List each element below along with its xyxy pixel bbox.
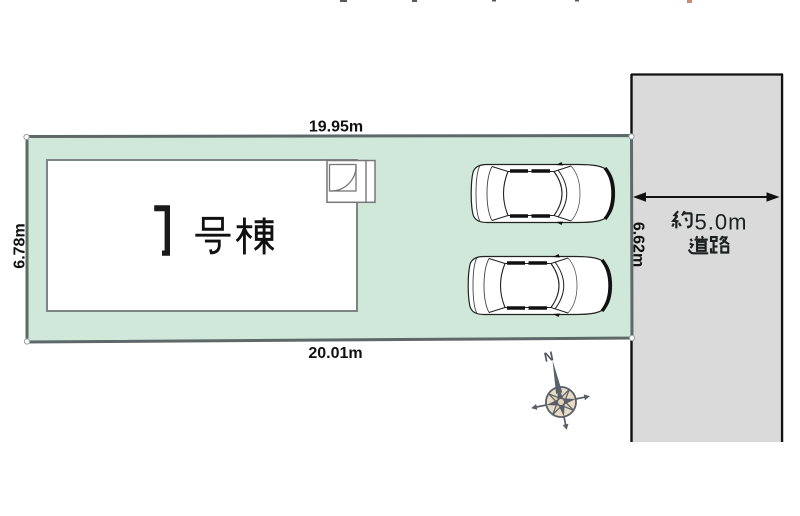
svg-text:6.78m: 6.78m (12, 223, 29, 268)
svg-text:5.0m: 5.0m (695, 209, 748, 234)
svg-text:19.95m: 19.95m (309, 119, 363, 136)
svg-text:20.01m: 20.01m (308, 345, 362, 362)
svg-text:6.62m: 6.62m (630, 222, 647, 267)
